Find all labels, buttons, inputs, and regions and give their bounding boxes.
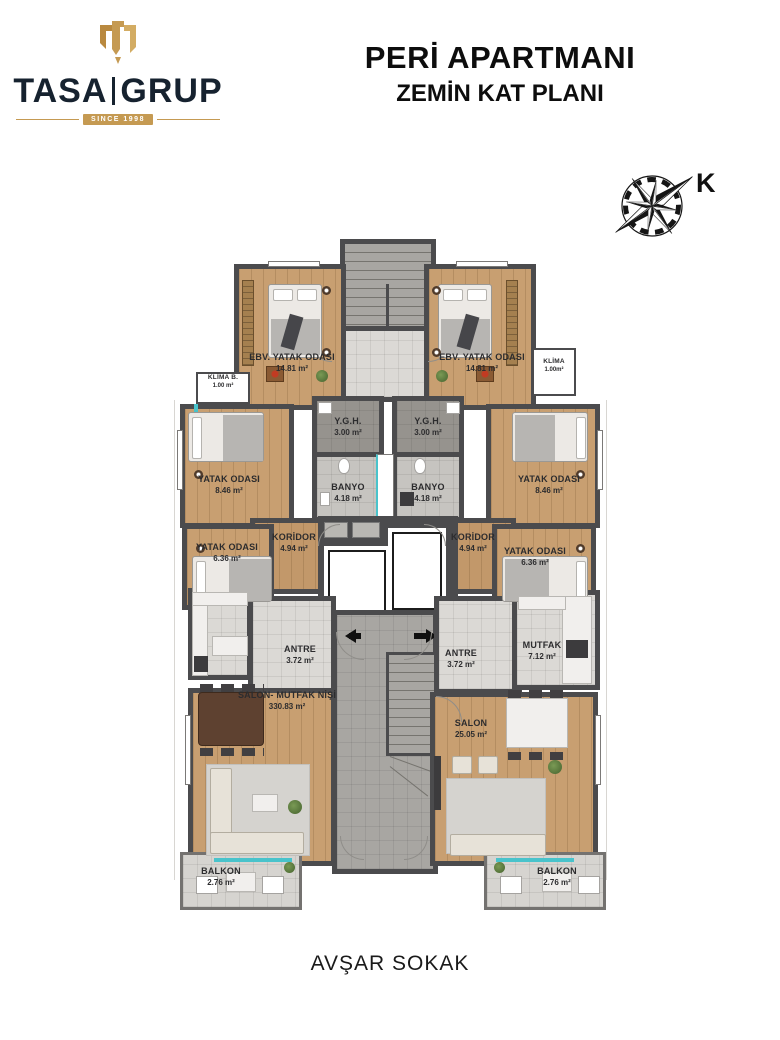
room-label-master-right: EBV. YATAK ODASI 14.81 m²: [427, 352, 537, 373]
site-boundary-right: [606, 400, 607, 880]
ceiling-spot: [432, 286, 441, 295]
window-top-right: [456, 261, 508, 267]
bed-846-right: [512, 412, 588, 462]
room-name: YATAK ODASI: [179, 474, 279, 485]
bed-master-left: [268, 284, 322, 358]
fridge: [194, 656, 208, 672]
blanket: [515, 415, 555, 461]
room-name: SALON- MUTFAK NİŞİ: [227, 690, 347, 701]
room-name: BALKON: [171, 866, 271, 877]
window-left-living: [185, 715, 191, 785]
room-area: 2.76 m²: [171, 878, 271, 888]
floor-plan: EBV. YATAK ODASI 14.81 m² EBV. YATAK ODA…: [0, 0, 780, 1040]
room-label-master-left: EBV. YATAK ODASI 14.81 m²: [237, 352, 347, 373]
pillow: [443, 289, 463, 301]
pillow: [297, 289, 317, 301]
window-right-living: [595, 715, 601, 785]
room-area: 25.05 m²: [421, 730, 521, 740]
room-label-living-left: SALON- MUTFAK NİŞİ 330.83 m²: [227, 690, 347, 711]
room-label-bath-left: BANYO 4.18 m²: [313, 482, 383, 503]
ygh-cabinet: [446, 402, 460, 414]
armchair: [452, 756, 472, 774]
room-name: Y.G.H.: [393, 416, 463, 427]
bed-master-right: [438, 284, 492, 358]
niche-island: [212, 636, 248, 656]
sofa-left-horizontal: [210, 832, 304, 854]
elevator-shaft-1: [328, 550, 386, 612]
pillow: [467, 289, 487, 301]
dining-chairs-row: [508, 690, 568, 698]
room-area: 6.36 m²: [177, 554, 277, 564]
room-area: 330.83 m²: [227, 702, 347, 712]
plant: [494, 862, 505, 873]
room-label-ac-right: KLİMA 1.00m²: [531, 358, 577, 374]
room-area: 1.00 m²: [192, 383, 254, 390]
niche-counter-top: [192, 592, 248, 606]
room-name: KLİMA B.: [192, 374, 254, 382]
pillow: [192, 417, 202, 459]
room-name: SALON: [421, 718, 521, 729]
room-area: 14.81 m²: [427, 364, 537, 374]
window-top-left: [268, 261, 320, 267]
room-label-entry-left: ANTRE 3.72 m²: [250, 644, 350, 665]
site-boundary-left: [174, 400, 175, 880]
dining-chairs-row: [200, 748, 264, 756]
room-label-ac-left: KLİMA B. 1.00 m²: [192, 374, 254, 390]
balcony-door-glass-left: [214, 858, 292, 862]
toilet: [338, 458, 350, 474]
room-area: 3.00 m²: [393, 428, 463, 438]
room-area: 1.00m²: [531, 367, 577, 374]
room-area: 2.76 m²: [507, 878, 607, 888]
room-area: 14.81 m²: [237, 364, 347, 374]
pillow: [576, 417, 586, 459]
coffee-table-left: [252, 794, 278, 812]
dining-chairs-row: [508, 752, 568, 760]
room-name: EBV. YATAK ODASI: [237, 352, 347, 363]
room-area: 3.72 m²: [250, 656, 350, 666]
room-name: MUTFAK: [492, 640, 592, 651]
room-name: KLİMA: [531, 358, 577, 366]
room-label-balcony-left: BALKON 2.76 m²: [171, 866, 271, 887]
room-name: Y.G.H.: [313, 416, 383, 427]
room-name: KORİDOR: [423, 532, 523, 543]
room-area: 6.36 m²: [485, 558, 585, 568]
room-name: BANYO: [313, 482, 383, 493]
plant: [548, 760, 562, 774]
room-label-balcony-right: BALKON 2.76 m²: [507, 866, 607, 887]
room-name: YATAK ODASI: [177, 542, 277, 553]
street-label: AVŞAR SOKAK: [0, 952, 780, 976]
core-shelf-b: [352, 522, 380, 538]
room-label-ygh-left: Y.G.H. 3.00 m²: [313, 416, 383, 437]
balcony-door-glass-right: [496, 858, 574, 862]
tv-unit-right: [434, 756, 441, 810]
ceiling-spot: [322, 286, 331, 295]
room-name: YATAK ODASI: [499, 474, 599, 485]
room-label-636-right: YATAK ODASI 6.36 m²: [485, 546, 585, 567]
room-area: 3.00 m²: [313, 428, 383, 438]
room-area: 8.46 m²: [499, 486, 599, 496]
room-area: 4.18 m²: [313, 494, 383, 504]
room-label-bath-right: BANYO 4.18 m²: [393, 482, 463, 503]
stairwell-divider-wall: [386, 284, 389, 328]
floor-plan-page: { "header": { "logo": { "brand_left": "T…: [0, 0, 780, 1040]
room-label-living-right: SALON 25.05 m²: [421, 718, 521, 739]
bed-846-left: [188, 412, 264, 462]
plant: [288, 800, 302, 814]
armchair: [478, 756, 498, 774]
toilet: [414, 458, 426, 474]
ygh-cabinet: [318, 402, 332, 414]
room-label-636-left: YATAK ODASI 6.36 m²: [177, 542, 277, 563]
room-name: BANYO: [393, 482, 463, 493]
room-label-846-right: YATAK ODASI 8.46 m²: [499, 474, 599, 495]
room-label-kitchen-right: MUTFAK 7.12 m²: [492, 640, 592, 661]
pillow: [273, 289, 293, 301]
room-name: YATAK ODASI: [485, 546, 585, 557]
room-area: 8.46 m²: [179, 486, 279, 496]
room-name: BALKON: [507, 866, 607, 877]
room-name: ANTRE: [250, 644, 350, 655]
room-area: 4.18 m²: [393, 494, 463, 504]
room-label-846-left: YATAK ODASI 8.46 m²: [179, 474, 279, 495]
room-area: 7.12 m²: [492, 652, 592, 662]
room-label-ygh-right: Y.G.H. 3.00 m²: [393, 416, 463, 437]
room-name: EBV. YATAK ODASI: [427, 352, 537, 363]
plant: [284, 862, 295, 873]
blanket: [223, 415, 263, 461]
sofa-right-horizontal: [450, 834, 546, 856]
kitchen-counter-top-right: [518, 596, 566, 610]
